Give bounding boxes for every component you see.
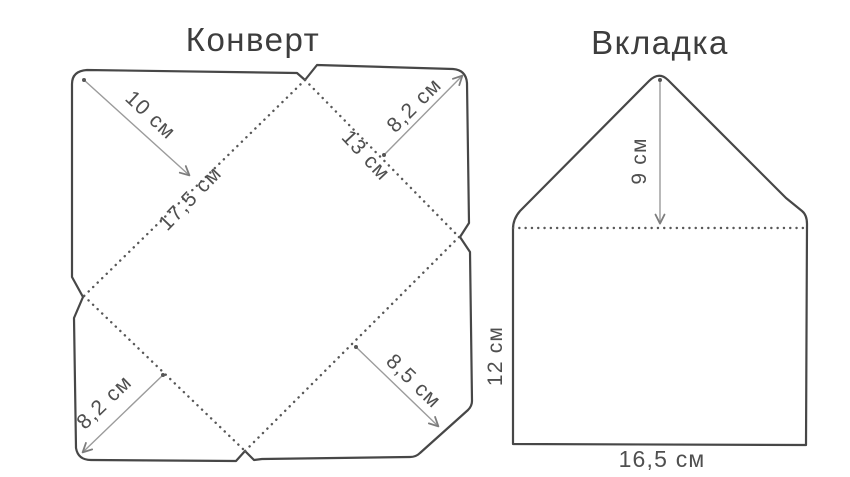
insert-dim-label-body-height: 12 см — [484, 326, 507, 386]
insert-figure: Вкладка 9 см 12 см 16,5 см — [484, 24, 807, 472]
pattern-sheet: Конверт 10 см 8,2 см 13 см 17,5 см 8, — [0, 0, 850, 477]
dimension-dot — [658, 78, 662, 82]
dimension-dot — [354, 345, 358, 349]
insert-dim-label-flap-height: 9 см — [628, 137, 651, 184]
pattern-diagram: Конверт 10 см 8,2 см 13 см 17,5 см 8, — [0, 0, 850, 477]
envelope-fold-line-bottom-right — [245, 237, 459, 451]
dimension-dot — [161, 373, 165, 377]
envelope-dim-label-bottom-left-flap: 8,2 см — [72, 371, 136, 434]
dimension-dot — [82, 78, 86, 82]
insert-title: Вкладка — [591, 24, 729, 61]
envelope-title: Конверт — [186, 21, 321, 58]
envelope-dim-label-left-fold: 17,5 см — [154, 162, 226, 236]
envelope-dim-label-top-right-flap: 8,2 см — [383, 74, 447, 138]
envelope-figure: Конверт 10 см 8,2 см 13 см 17,5 см 8, — [72, 21, 472, 461]
envelope-dim-label-top-left-flap: 10 см — [121, 86, 181, 144]
insert-dim-label-body-width: 16,5 см — [619, 446, 706, 472]
envelope-dim-label-right-fold: 13 см — [337, 126, 395, 186]
